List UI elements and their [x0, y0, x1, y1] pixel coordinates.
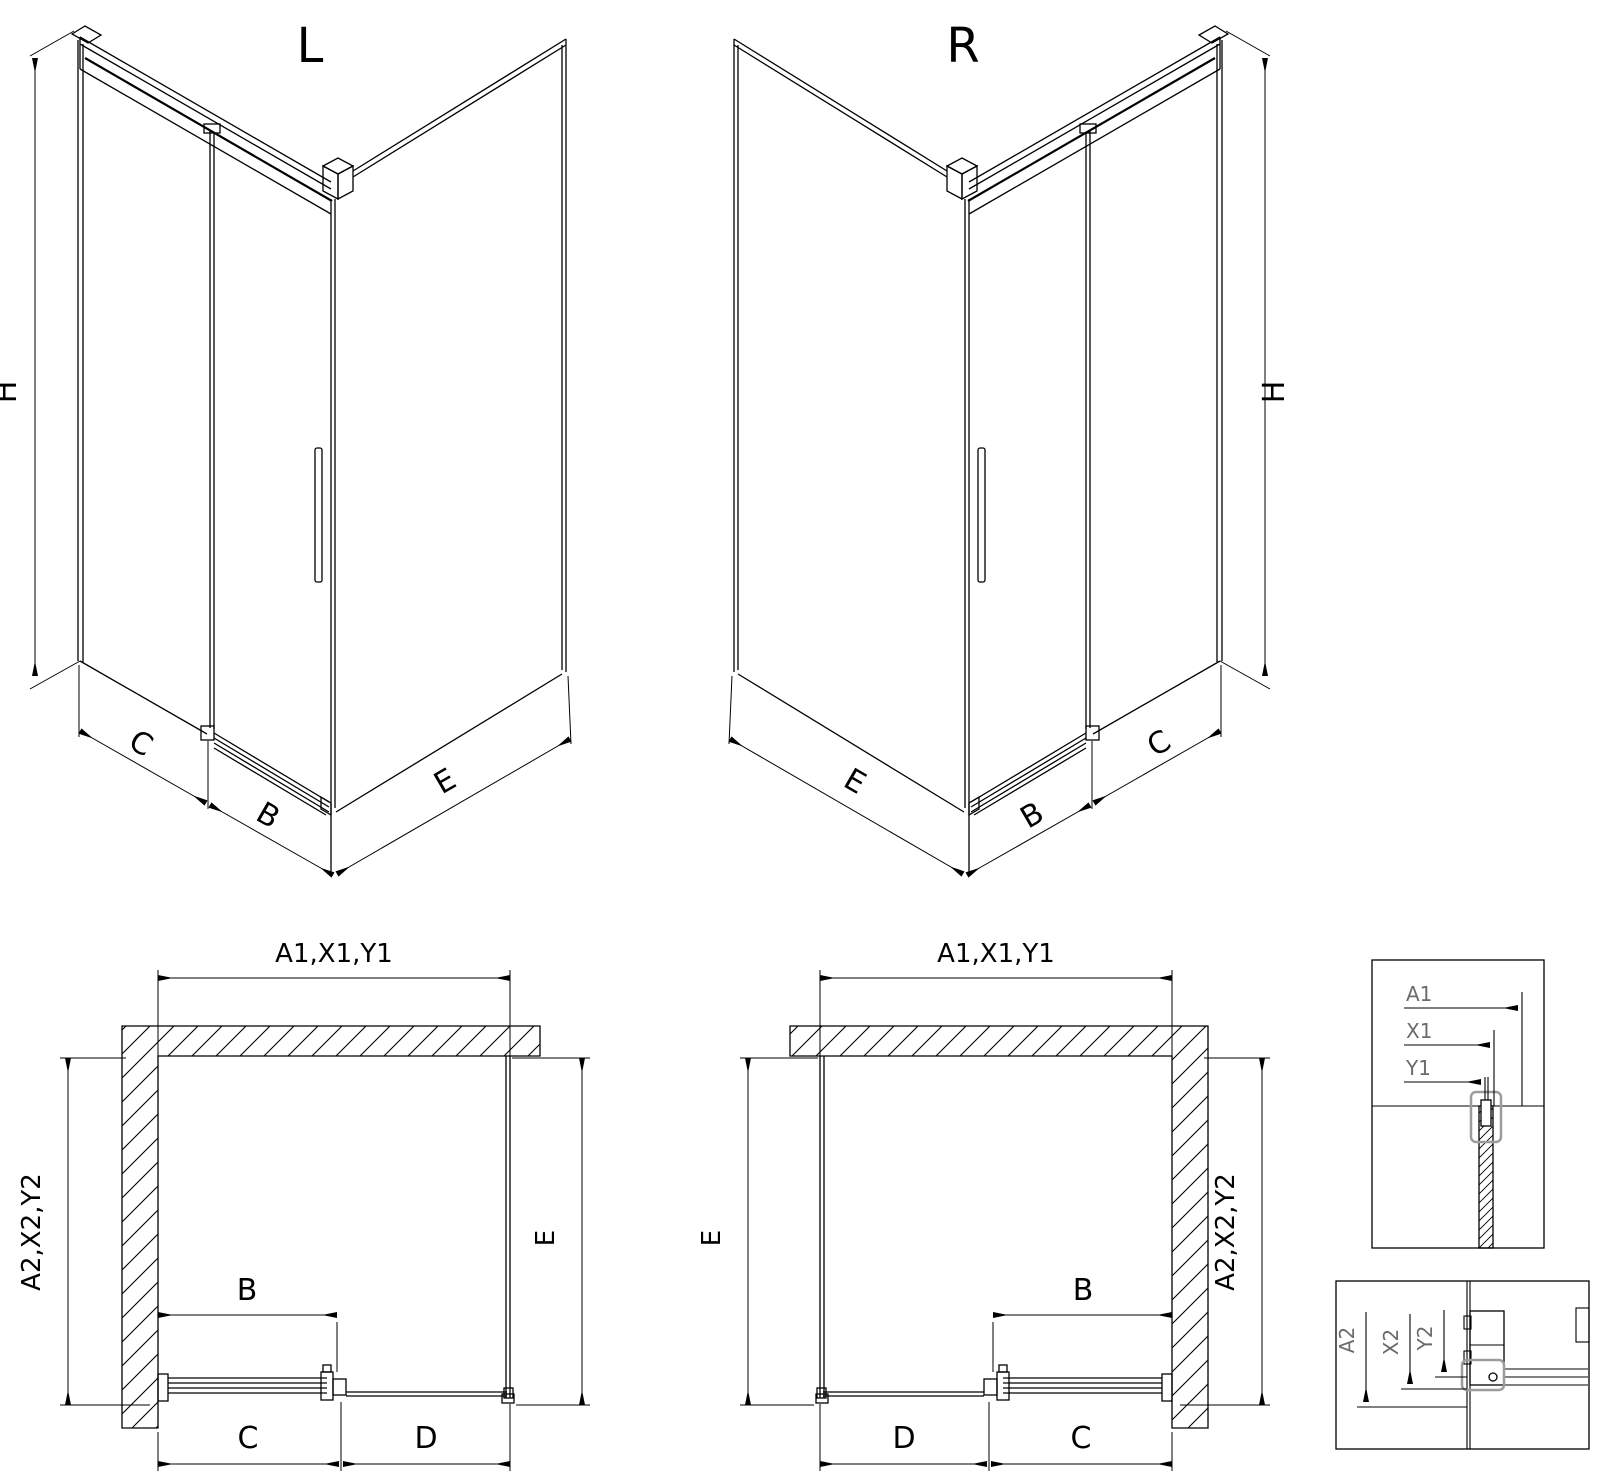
- dim-label-a2: A2: [1335, 1327, 1359, 1353]
- dim-label-return-panel: E: [428, 762, 462, 802]
- dim-label-bottom-right: D: [414, 1421, 437, 1456]
- technical-drawing-page: L H C B E R H C B E A1,X1,Y1 A2,X2,Y2 E …: [0, 0, 1600, 1474]
- dim-label-height: H: [0, 381, 24, 404]
- dim-label-bottom-right: C: [1071, 1421, 1092, 1456]
- dim-label-bottom-left: C: [238, 1421, 259, 1456]
- iso-view-left: L H C B E: [0, 18, 571, 875]
- detail-view-top-adjustment: A1 X1 Y1: [1372, 960, 1544, 1248]
- dim-label-door: B: [1015, 795, 1050, 836]
- dim-label-left: E: [697, 1230, 727, 1246]
- dim-label-bottom-left: D: [892, 1421, 915, 1456]
- dim-label-a1: A1: [1406, 982, 1432, 1006]
- variant-label-right: R: [946, 18, 979, 74]
- shower-enclosure-diagram: L H C B E R H C B E A1,X1,Y1 A2,X2,Y2 E …: [0, 0, 1600, 1474]
- dim-label-x1: X1: [1406, 1019, 1432, 1043]
- detail-frame: [1372, 960, 1544, 1248]
- iso-view-right: R H C B E: [729, 18, 1292, 875]
- dim-label-y2: Y2: [1413, 1326, 1437, 1352]
- dim-label-y1: Y1: [1405, 1056, 1431, 1080]
- mounting-profile: [1481, 1100, 1491, 1126]
- dim-label-right: A2,X2,Y2: [1211, 1173, 1241, 1291]
- dim-label-door: B: [250, 795, 285, 836]
- dim-label-top: A1,X1,Y1: [275, 939, 393, 969]
- door-profile-section: [1470, 1311, 1504, 1385]
- dim-label-height: H: [1257, 381, 1292, 404]
- dim-label-left: A2,X2,Y2: [17, 1173, 47, 1291]
- dim-label-x2: X2: [1379, 1329, 1403, 1355]
- iso-left-geometry: [30, 26, 571, 875]
- plan-view-right: A1,X1,Y1 E A2,X2,Y2 B D C: [697, 939, 1270, 1471]
- dim-label-door: B: [237, 1273, 258, 1308]
- dim-label-return-panel: E: [838, 762, 872, 802]
- iso-right-geometry: [729, 26, 1270, 875]
- detail-view-bottom-adjustment: A2 X2 Y2: [1335, 1281, 1589, 1449]
- dim-label-right: E: [531, 1230, 561, 1246]
- plan-view-left: A1,X1,Y1 A2,X2,Y2 E B C D: [17, 939, 590, 1471]
- dim-label-top: A1,X1,Y1: [937, 939, 1055, 969]
- wall-bracket-section: [1576, 1308, 1589, 1342]
- dim-label-door: B: [1073, 1273, 1094, 1308]
- variant-label-left: L: [297, 18, 324, 74]
- adjustment-screw: [1489, 1373, 1497, 1381]
- wall-profile-section: [1479, 1106, 1493, 1248]
